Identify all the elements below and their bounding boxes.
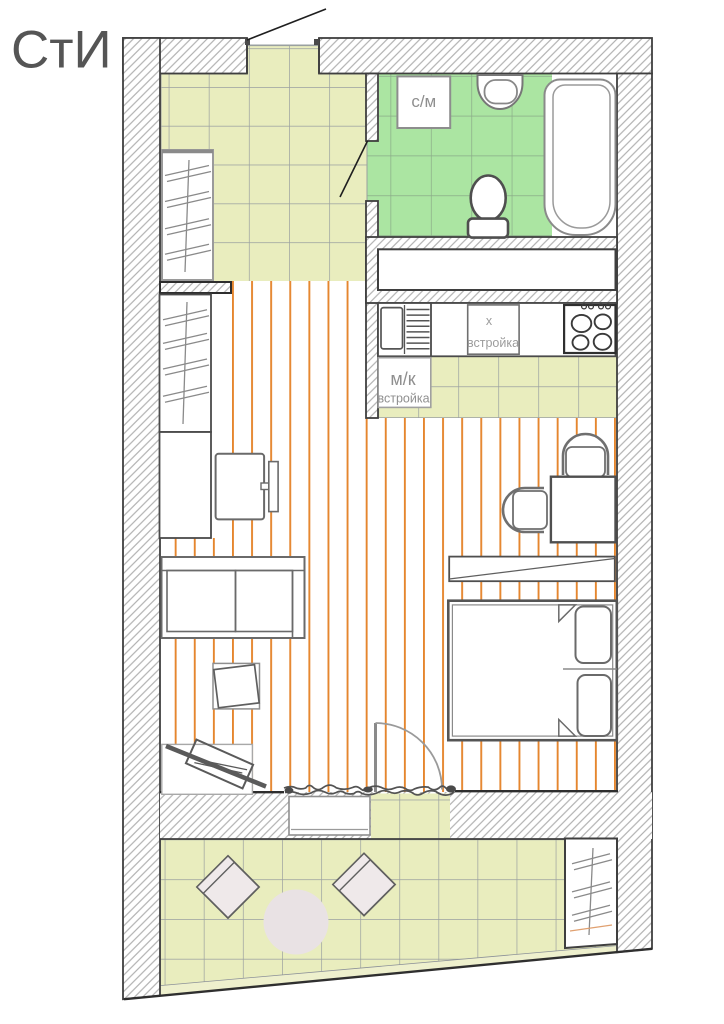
svg-text:м/к: м/к	[390, 369, 415, 389]
svg-text:СтИ: СтИ	[11, 21, 112, 80]
svg-text:х: х	[486, 314, 493, 328]
svg-text:с/м: с/м	[411, 92, 436, 111]
svg-text:встройка: встройка	[467, 336, 519, 350]
svg-text:встройка: встройка	[377, 392, 429, 406]
